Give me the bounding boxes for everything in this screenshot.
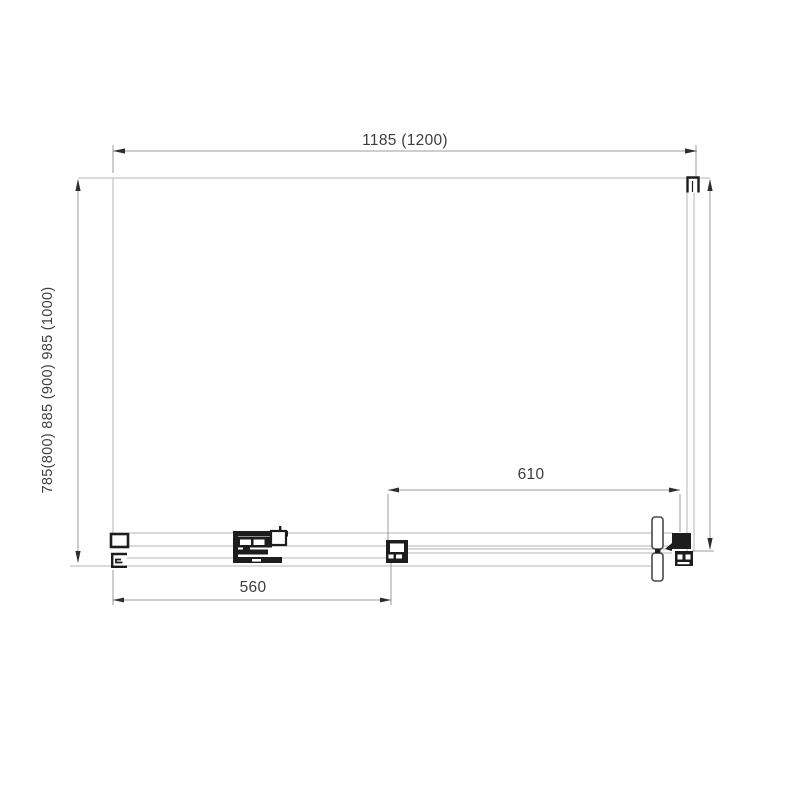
roller-wheel-housing <box>271 531 286 545</box>
arrow-right-icon <box>669 488 680 493</box>
roller-block-window <box>390 544 404 553</box>
opening-width-dimension: 610 <box>388 466 680 540</box>
left-depth-dimension: 785(800) 885 (900) 985 (1000) <box>40 179 81 563</box>
bottom-track-rails <box>70 533 673 566</box>
roller-connector <box>243 545 250 550</box>
roller-block-slot-2 <box>396 555 402 559</box>
bracket-slot-2 <box>686 555 691 560</box>
roller-block-slot-1 <box>389 555 394 559</box>
arrow-down-icon <box>75 551 80 563</box>
arrow-down-icon <box>707 538 712 550</box>
shower-enclosure-drawing: 1185 (1200) 785(800) 885 (900) 985 (1000… <box>0 0 800 800</box>
roller-mid-bar <box>238 550 268 555</box>
wall-profile-bottom-left <box>111 534 128 567</box>
handle-bar-lower <box>652 553 663 581</box>
top-width-dimension: 1185 (1200) <box>113 132 697 176</box>
arrow-left-icon <box>113 598 124 603</box>
door-guide-profile-inner <box>116 560 123 563</box>
arrow-left-icon <box>388 488 399 493</box>
door-width-label: 560 <box>240 579 267 596</box>
arrow-left-icon <box>113 148 125 153</box>
roller-clamp-assembly <box>233 526 288 563</box>
bracket-body <box>672 533 691 549</box>
wall-profile-section <box>111 534 128 547</box>
arrow-right-icon <box>380 598 391 603</box>
bracket-slot-3 <box>678 562 690 564</box>
arrow-up-icon <box>75 179 80 191</box>
roller-body-window-2 <box>254 540 265 546</box>
opening-width-label: 610 <box>518 466 545 483</box>
handle-bar-upper <box>652 517 663 549</box>
bracket-slot-1 <box>678 555 683 560</box>
bracket-flap <box>665 543 672 551</box>
arrow-right-icon <box>685 148 697 153</box>
wall-profile-top-right <box>688 178 699 193</box>
arrow-up-icon <box>707 179 712 191</box>
technical-drawing-canvas: 1185 (1200) 785(800) 885 (900) 985 (1000… <box>0 0 800 800</box>
handle-mount <box>655 549 661 554</box>
door-width-dimension: 560 <box>113 563 391 605</box>
door-roller-block <box>386 540 408 563</box>
right-depth-dimension <box>692 179 714 551</box>
top-width-label: 1185 (1200) <box>362 132 448 149</box>
left-depth-label: 785(800) 885 (900) 985 (1000) <box>40 286 56 493</box>
door-handle <box>652 517 663 581</box>
corner-bracket-assembly <box>665 533 693 566</box>
roller-bottom-notch <box>252 559 261 562</box>
roller-body-window-1 <box>240 540 251 546</box>
enclosure-outline <box>78 178 710 552</box>
